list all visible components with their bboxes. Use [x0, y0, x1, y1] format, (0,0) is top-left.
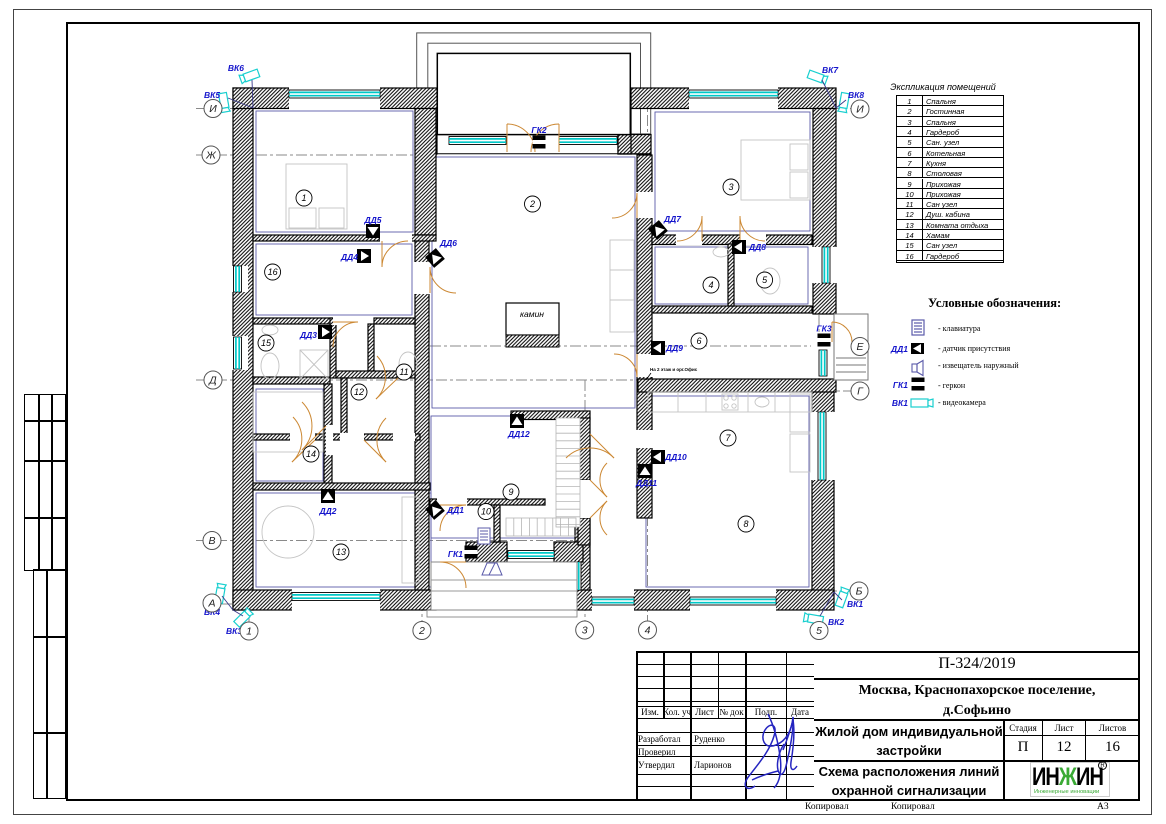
svg-text:5: 5 — [816, 625, 822, 637]
svg-text:ДД2: ДД2 — [318, 506, 336, 516]
svg-text:4: 4 — [645, 624, 651, 636]
svg-text:Ж: Ж — [205, 149, 217, 161]
svg-text:2: 2 — [418, 625, 425, 637]
svg-text:1: 1 — [301, 193, 306, 203]
svg-text:ВК6: ВК6 — [228, 63, 244, 73]
svg-text:6: 6 — [696, 336, 701, 346]
svg-text:ДД11: ДД11 — [635, 478, 657, 488]
svg-text:14: 14 — [306, 449, 316, 459]
svg-text:ДД7: ДД7 — [663, 214, 682, 224]
svg-text:И: И — [209, 103, 217, 115]
svg-text:ГК1: ГК1 — [448, 549, 463, 559]
svg-text:ВК1: ВК1 — [892, 398, 908, 408]
svg-text:ГК1: ГК1 — [893, 380, 908, 390]
svg-text:11: 11 — [399, 367, 408, 377]
svg-text:камин: камин — [520, 309, 544, 319]
svg-text:ВК5: ВК5 — [204, 90, 220, 100]
svg-text:Е: Е — [856, 341, 864, 353]
svg-text:ГК2: ГК2 — [531, 125, 546, 135]
svg-text:ДД3: ДД3 — [299, 330, 317, 340]
svg-text:Д: Д — [208, 374, 217, 386]
svg-text:ДД4: ДД4 — [340, 252, 358, 262]
svg-text:10: 10 — [481, 507, 491, 517]
svg-text:ВК1: ВК1 — [847, 599, 863, 609]
svg-text:2: 2 — [529, 199, 535, 209]
svg-text:ДД10: ДД10 — [664, 452, 687, 462]
svg-text:1: 1 — [246, 625, 252, 637]
svg-text:ДД6: ДД6 — [439, 238, 457, 248]
svg-text:ДД8: ДД8 — [748, 242, 766, 252]
svg-text:ВК7: ВК7 — [822, 65, 839, 75]
svg-text:12: 12 — [354, 387, 364, 397]
svg-text:13: 13 — [336, 547, 346, 557]
svg-text:ДД9: ДД9 — [665, 343, 683, 353]
svg-text:В: В — [208, 535, 215, 547]
svg-text:На 2 этаж и орг.Офис: На 2 этаж и орг.Офис — [650, 366, 698, 372]
svg-text:И: И — [856, 103, 864, 115]
svg-text:ДД1: ДД1 — [890, 344, 908, 354]
svg-text:ДД1: ДД1 — [446, 505, 464, 515]
svg-text:ДД5: ДД5 — [363, 215, 381, 225]
svg-text:Б: Б — [856, 585, 863, 597]
svg-text:ВК8: ВК8 — [848, 90, 864, 100]
svg-text:ДД12: ДД12 — [507, 429, 530, 439]
svg-text:9: 9 — [508, 487, 513, 497]
svg-text:А: А — [207, 597, 215, 609]
svg-text:ГК3: ГК3 — [816, 324, 831, 334]
svg-text:3: 3 — [582, 624, 588, 636]
svg-text:ВК2: ВК2 — [828, 617, 844, 627]
svg-text:16: 16 — [268, 267, 278, 277]
svg-text:15: 15 — [261, 338, 272, 348]
svg-text:4: 4 — [708, 280, 713, 290]
svg-text:3: 3 — [728, 182, 733, 192]
svg-text:8: 8 — [743, 519, 748, 529]
